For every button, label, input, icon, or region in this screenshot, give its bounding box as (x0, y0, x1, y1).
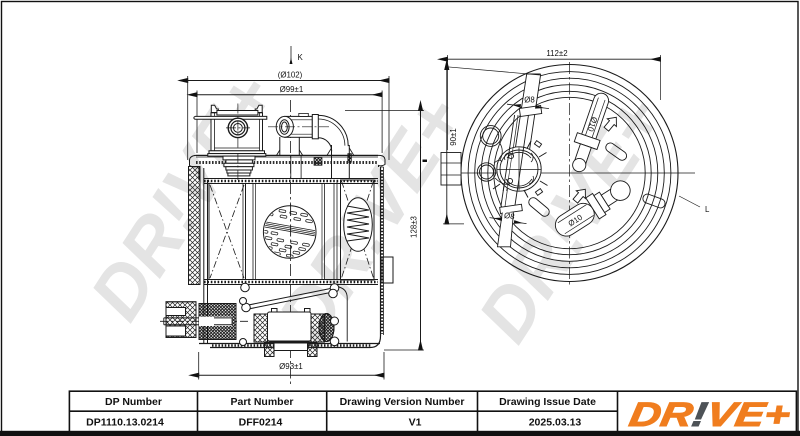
svg-text:DFF0214: DFF0214 (239, 417, 283, 429)
svg-text:DR!VE+: DR!VE+ (626, 396, 793, 434)
svg-text:DP Number: DP Number (105, 396, 162, 408)
svg-text:Part Number: Part Number (230, 396, 293, 408)
svg-text:Ø8: Ø8 (504, 211, 516, 221)
svg-text:Drawing Issue Date: Drawing Issue Date (499, 396, 596, 408)
svg-text:90±1: 90±1 (449, 128, 458, 146)
svg-text:112±2: 112±2 (546, 49, 567, 58)
svg-text:Ø8: Ø8 (524, 95, 535, 104)
svg-text:K: K (298, 53, 304, 62)
svg-text:Ø93±1: Ø93±1 (279, 362, 303, 371)
svg-text:Ø99±1: Ø99±1 (280, 85, 304, 94)
svg-text:L: L (705, 205, 710, 214)
svg-text:128±3: 128±3 (410, 215, 419, 237)
svg-text:Drawing Version Number: Drawing Version Number (340, 396, 465, 408)
svg-text:2025.03.13: 2025.03.13 (529, 417, 582, 429)
svg-text:(Ø102): (Ø102) (278, 71, 303, 80)
svg-text:DP1110.13.0214: DP1110.13.0214 (86, 417, 164, 429)
svg-text:V1: V1 (409, 417, 422, 429)
